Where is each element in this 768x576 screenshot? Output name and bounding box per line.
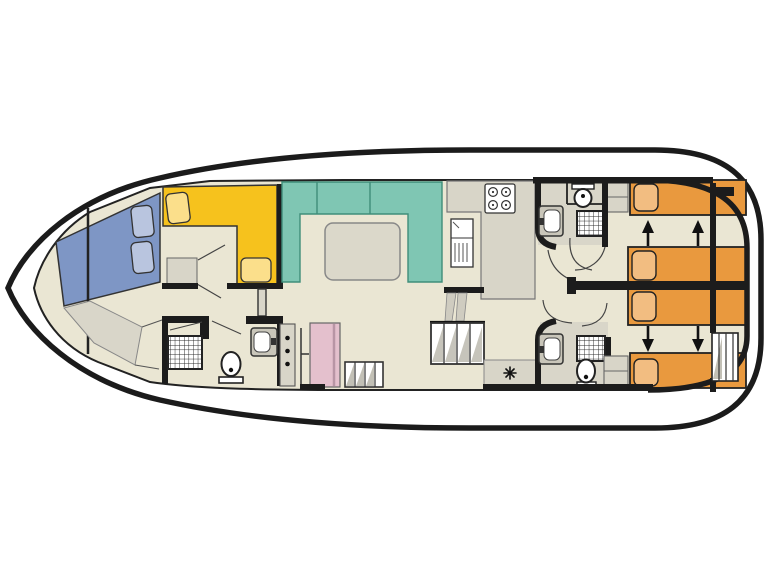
wall: [300, 384, 325, 390]
shower: [168, 336, 202, 369]
passage-wall: [258, 289, 266, 316]
stern-steps: [712, 333, 738, 381]
helm-strip: [484, 360, 537, 387]
wardrobe: [310, 323, 340, 387]
wall: [444, 287, 484, 293]
washbasin: [539, 334, 563, 364]
helm-star-icon: [504, 367, 516, 379]
wall: [483, 384, 653, 391]
stove: [485, 184, 515, 213]
sunpad-cushion: [130, 241, 154, 274]
wall: [246, 316, 283, 324]
small-steps: [345, 362, 383, 387]
pillow: [634, 359, 658, 386]
boat-floorplan-canvas: [0, 0, 768, 576]
fridge: [451, 219, 473, 267]
pillow: [634, 184, 658, 211]
wall-divider-post: [567, 277, 576, 294]
toilet: [219, 352, 243, 383]
side-table: [167, 258, 197, 284]
toilet: [572, 184, 594, 207]
shower: [577, 336, 605, 361]
washbasin: [251, 328, 277, 356]
shower: [577, 211, 604, 236]
dinette-cushion: [165, 192, 190, 224]
cupboard: [280, 324, 295, 386]
wall: [227, 283, 283, 289]
wall-cabin-divider: [570, 281, 747, 290]
toilet: [577, 360, 596, 388]
wall: [602, 180, 608, 247]
wall: [162, 283, 198, 289]
sunpad-cushion: [130, 205, 154, 238]
pillow: [632, 251, 656, 280]
washbasin: [539, 206, 563, 236]
dinette-cushion: [241, 258, 271, 282]
cabin-cupboard: [604, 356, 628, 386]
floorplan-svg: [0, 0, 768, 576]
saloon-table: [325, 223, 400, 280]
pillow: [632, 292, 656, 321]
